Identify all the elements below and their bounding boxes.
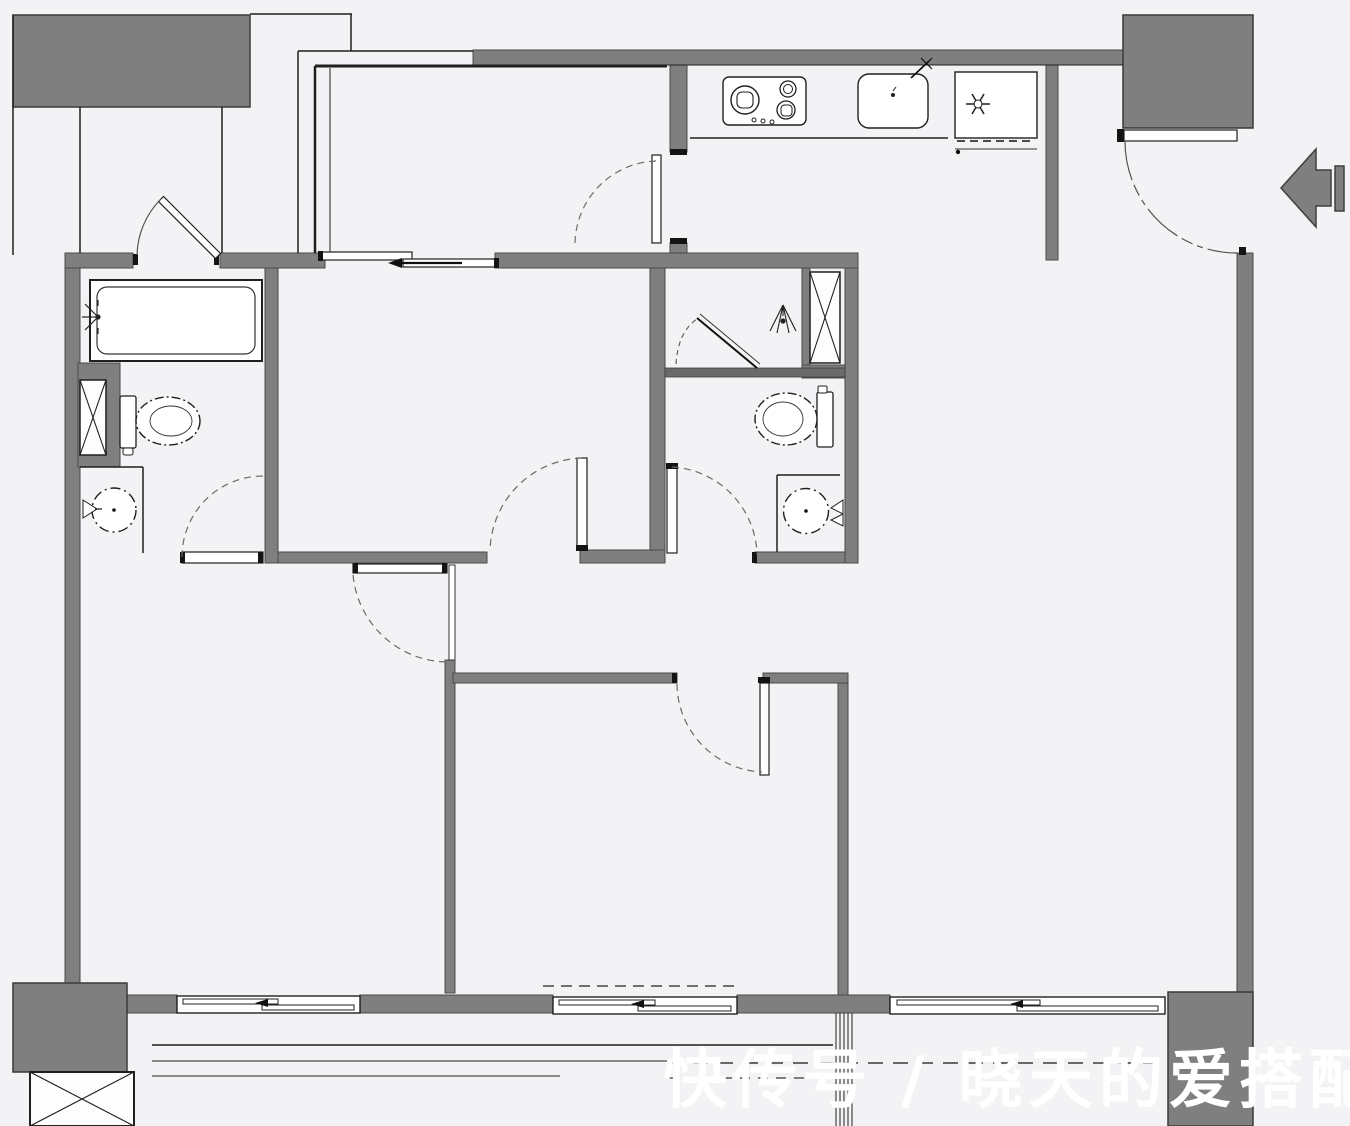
shower-head-icon <box>770 305 796 333</box>
wall-bottom-a <box>127 995 177 1013</box>
wall-block-top-right <box>1123 15 1253 128</box>
floor-plan-canvas: 快传号 / 晓天的爱搭配 <box>0 0 1350 1126</box>
wall-bath2-bottom <box>755 552 845 563</box>
door-bedroom-middle <box>490 458 588 551</box>
door-swing-arc <box>677 684 762 772</box>
wall-shower-partition <box>665 368 845 377</box>
door-living-room <box>353 563 455 662</box>
wall-livingroom-partition <box>445 660 455 993</box>
entry-arrow <box>1281 149 1344 227</box>
door-leaf <box>652 155 661 243</box>
door-leaf <box>1124 130 1237 141</box>
floor-plan-drawing <box>0 0 1350 1126</box>
door-bathroom-right <box>666 463 757 563</box>
windows <box>177 996 1165 1014</box>
door-leaf <box>760 683 769 775</box>
wall-bottom-c <box>737 995 890 1013</box>
door-kitchen <box>575 149 687 244</box>
wall-block-top-left <box>13 15 250 107</box>
wall-bottom-b <box>360 995 553 1013</box>
washbasin-icon <box>83 488 136 532</box>
duct-shaft-icon <box>810 272 840 363</box>
wall-bedroom-bottom-a <box>278 552 487 563</box>
wall-bedroom-bottom-b <box>580 550 665 563</box>
entry-arrow-bar <box>1335 166 1344 211</box>
wall-shaft2-left <box>802 268 810 365</box>
door-leaf <box>667 467 677 553</box>
door-swing-arc <box>575 161 656 243</box>
balcony-shaft <box>30 1072 134 1126</box>
door-leaf <box>182 552 263 563</box>
wall-block-bottom-left <box>13 983 127 1072</box>
door-swing-arc <box>1125 141 1237 253</box>
doors <box>133 129 1246 775</box>
door-bathroom-left <box>180 476 263 563</box>
door-entry <box>1117 129 1246 255</box>
window-left <box>177 996 360 1013</box>
wall-mid-left-b <box>220 253 325 268</box>
bathroom-right-fixtures <box>676 272 843 534</box>
door-leaf <box>353 564 447 573</box>
toilet-icon <box>755 386 833 447</box>
duct-shaft-icon <box>80 380 106 455</box>
wall-bath1-bedroom <box>265 268 278 563</box>
door-leaf <box>159 197 221 259</box>
door-leaf <box>577 458 587 550</box>
door-swing-arc <box>182 476 263 557</box>
door-swing-arc <box>137 199 161 255</box>
wall-bedroom2-top-b <box>763 673 848 683</box>
wall-bedroom-bath2 <box>650 268 665 563</box>
wall-right-outer <box>1237 253 1253 992</box>
kitchen-sink-icon <box>858 58 932 128</box>
shower-pivot-door <box>676 314 760 368</box>
door-utility <box>133 197 221 266</box>
bathtub-icon <box>90 280 262 361</box>
sliding-door-balcony <box>318 251 499 268</box>
wall-mid-horizontal <box>495 253 858 268</box>
door-bedroom-bottom <box>672 673 770 775</box>
watermark-text: 快传号 / 晓天的爱搭配 <box>663 1046 1350 1116</box>
wall-bedroom2-top-a <box>453 673 677 683</box>
door-swing-arc <box>672 467 757 555</box>
window-middle <box>553 997 737 1014</box>
wall-kitchen-left <box>670 65 687 152</box>
door-swing-arc <box>353 575 449 662</box>
wall-top <box>473 50 1123 65</box>
toilet-icon <box>120 396 200 455</box>
wall-kitchen-entry-divider <box>1046 65 1058 260</box>
wall-bath2-right <box>845 268 858 563</box>
door-frame <box>449 565 455 660</box>
cooktop-icon <box>723 77 806 125</box>
kitchen-fixtures <box>723 58 1037 154</box>
entry-arrow-icon <box>1281 149 1331 227</box>
door-swing-arc <box>490 458 582 551</box>
sliding-panel <box>322 252 412 260</box>
wall-mid-left-a <box>65 253 133 268</box>
wall-bedroom2-right <box>838 683 848 995</box>
refrigerator-icon <box>955 72 1037 154</box>
washbasin-icon <box>784 489 844 534</box>
window-right <box>890 997 1165 1014</box>
walls <box>13 15 1253 1126</box>
